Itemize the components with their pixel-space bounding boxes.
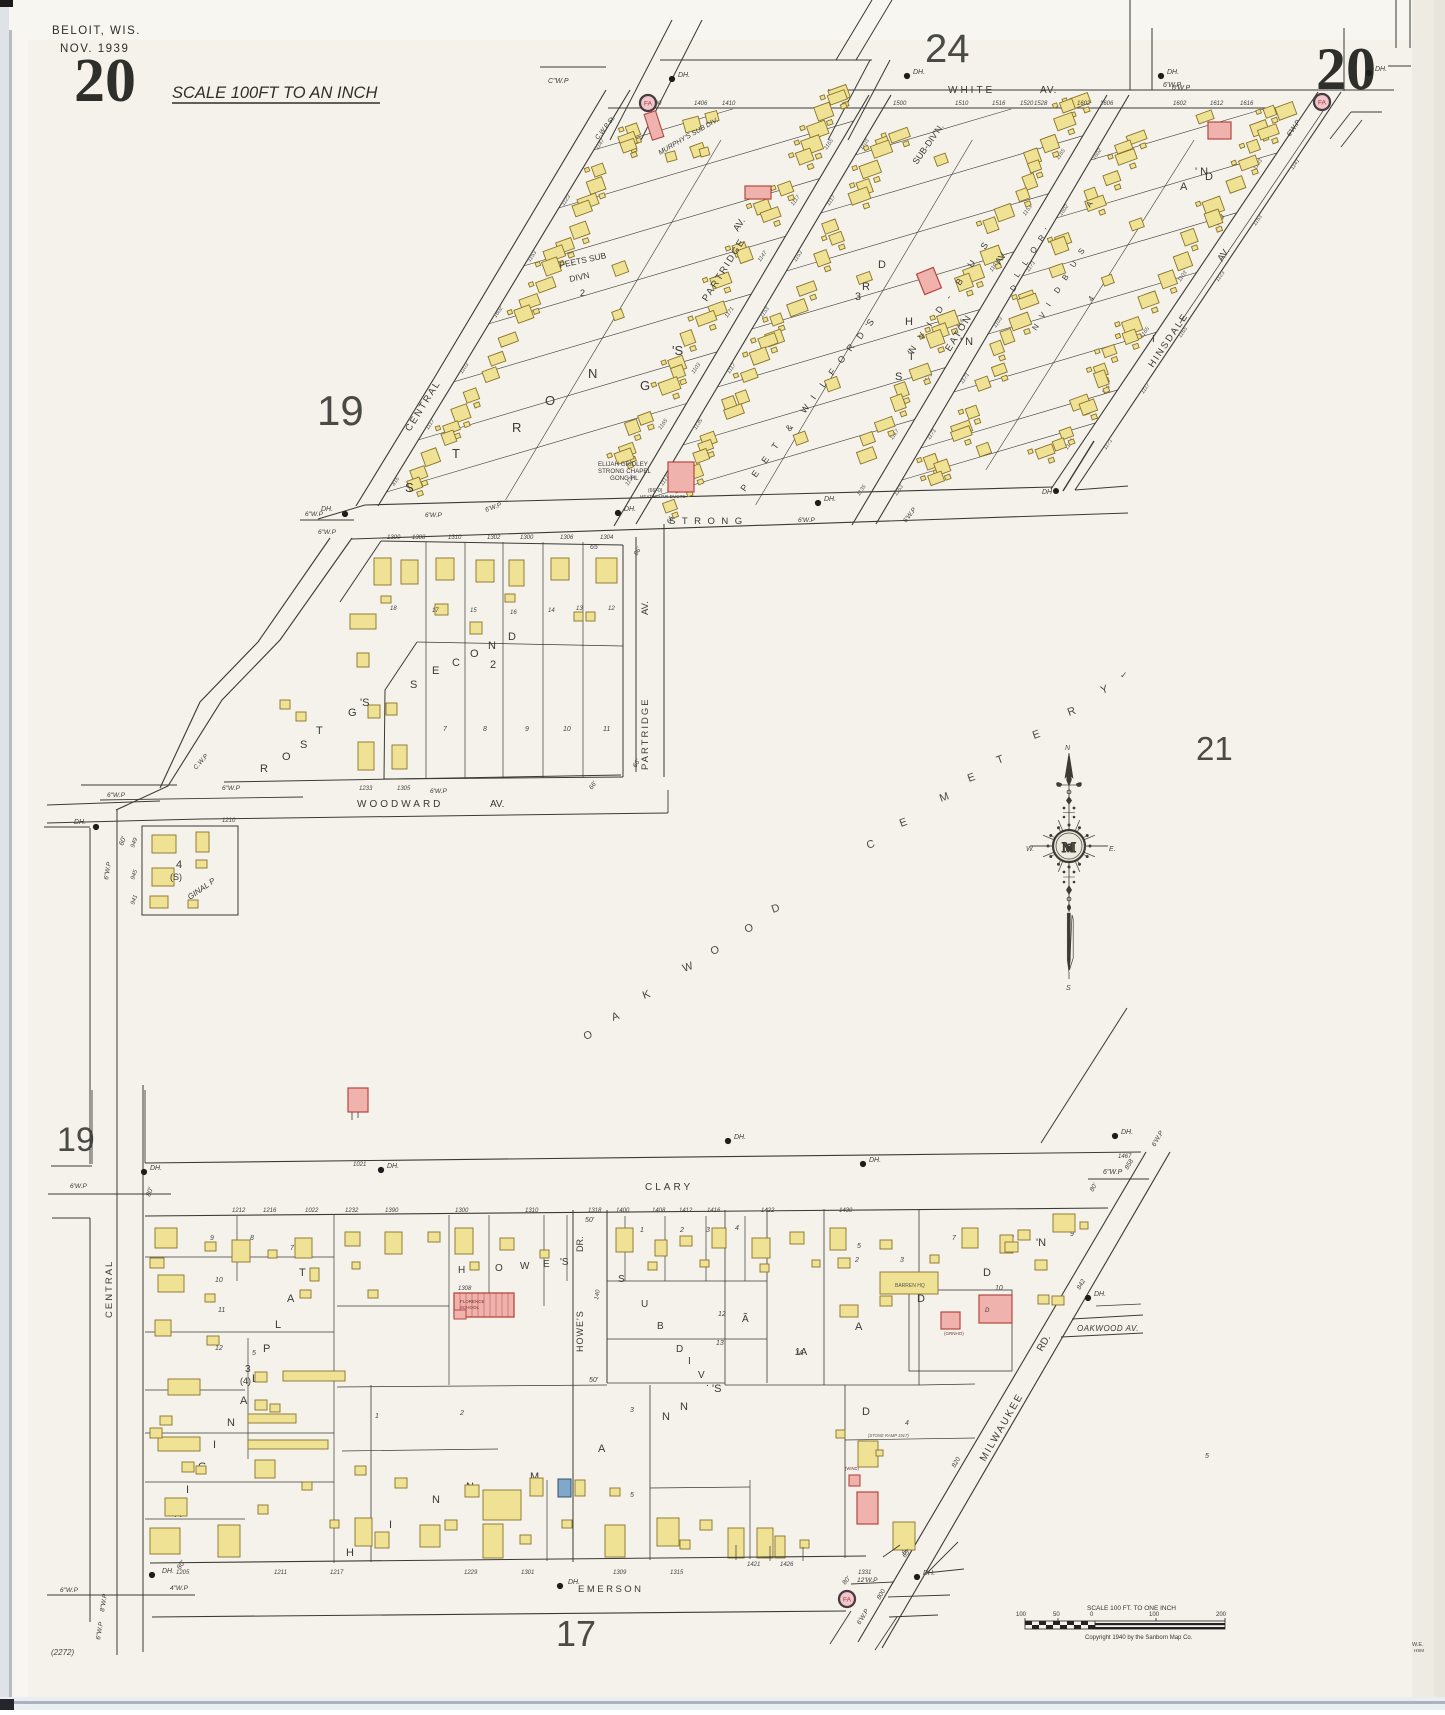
svg-text:1520: 1520 — [1020, 101, 1034, 107]
svg-text:5: 5 — [630, 1492, 634, 1499]
svg-text:24: 24 — [925, 27, 970, 71]
svg-text:'S: 'S — [560, 1257, 569, 1268]
svg-text:D: D — [508, 631, 516, 643]
svg-text:(4): (4) — [240, 1376, 251, 1386]
svg-text:1331: 1331 — [858, 1570, 871, 1576]
svg-text:(STONE RAMP 1917): (STONE RAMP 1917) — [868, 1433, 909, 1438]
svg-text:FLORENCE: FLORENCE — [460, 1299, 485, 1304]
svg-text:13: 13 — [576, 606, 583, 612]
svg-text:1400: 1400 — [616, 1208, 630, 1214]
svg-text:14: 14 — [548, 608, 555, 614]
svg-text:FA: FA — [843, 1597, 852, 1604]
svg-text:C: C — [452, 657, 460, 669]
svg-text:(GRNHO): (GRNHO) — [944, 1331, 964, 1336]
svg-text:GONG HL: GONG HL — [610, 475, 639, 482]
svg-text:S: S — [618, 1274, 625, 1285]
svg-text:50: 50 — [1053, 1612, 1060, 1618]
svg-text:1426: 1426 — [780, 1562, 794, 1568]
svg-text:DH.: DH. — [824, 496, 836, 503]
svg-text:20: 20 — [74, 47, 136, 115]
svg-text:D: D — [862, 1406, 870, 1418]
svg-text:E: E — [543, 1259, 550, 1270]
svg-text:3: 3 — [245, 1364, 251, 1375]
svg-text:3: 3 — [855, 291, 861, 303]
svg-text:HEAT HO P.R DUCTS: HEAT HO P.R DUCTS — [640, 494, 685, 499]
svg-text:H: H — [346, 1547, 354, 1559]
svg-text:1210: 1210 — [222, 818, 236, 824]
svg-text:1308: 1308 — [412, 535, 426, 541]
svg-text:D: D — [878, 259, 886, 271]
svg-text:S: S — [410, 679, 417, 691]
svg-text:4: 4 — [176, 859, 182, 871]
svg-text:1315: 1315 — [670, 1570, 684, 1576]
svg-text:D: D — [676, 1344, 683, 1355]
svg-text:N: N — [662, 1411, 670, 1423]
svg-text:1528: 1528 — [1034, 101, 1048, 107]
svg-text:G: G — [640, 378, 650, 393]
svg-text:SCALE 100 FT. TO ONE INCH: SCALE 100 FT. TO ONE INCH — [1087, 1605, 1176, 1612]
svg-text:DH: DH — [1042, 489, 1053, 496]
svg-text:12: 12 — [718, 1311, 726, 1318]
svg-text:5: 5 — [1205, 1453, 1209, 1460]
svg-text:1318: 1318 — [588, 1208, 602, 1214]
svg-text:8: 8 — [483, 726, 487, 733]
svg-text:1301: 1301 — [521, 1570, 534, 1576]
svg-text:S: S — [1066, 985, 1071, 992]
svg-text:N: N — [488, 640, 496, 652]
svg-text:✓: ✓ — [1120, 670, 1128, 680]
svg-text:DH.: DH. — [923, 1570, 935, 1577]
svg-text:6"W.P: 6"W.P — [318, 529, 337, 536]
svg-text:1412: 1412 — [679, 1208, 693, 1214]
svg-text:16: 16 — [510, 610, 517, 616]
svg-text:1516: 1516 — [992, 101, 1006, 107]
svg-text:'N: 'N — [1036, 1237, 1046, 1249]
svg-text:AV.: AV. — [1040, 85, 1057, 96]
svg-text:DH.: DH. — [678, 72, 690, 79]
svg-text:I: I — [213, 1439, 216, 1451]
svg-text:5: 5 — [857, 1243, 861, 1250]
svg-text:H: H — [458, 1265, 465, 1276]
svg-text:1309: 1309 — [613, 1570, 627, 1576]
svg-text:10: 10 — [215, 1277, 223, 1284]
svg-text:1305: 1305 — [397, 786, 411, 792]
svg-text:R: R — [512, 420, 521, 435]
svg-text:100: 100 — [1016, 1612, 1027, 1618]
svg-text:12: 12 — [608, 606, 615, 612]
svg-text:6'W.P: 6'W.P — [798, 517, 816, 524]
svg-text:4: 4 — [735, 1225, 739, 1232]
svg-text:S: S — [300, 739, 307, 751]
svg-text:4"W.P: 4"W.P — [170, 1585, 189, 1592]
svg-text:18: 18 — [390, 606, 397, 612]
svg-text:E: E — [432, 665, 439, 677]
svg-text:DH.: DH. — [1094, 1291, 1106, 1298]
svg-text:1430: 1430 — [839, 1208, 853, 1214]
svg-text:W: W — [520, 1261, 530, 1272]
svg-text:'S: 'S — [360, 697, 369, 709]
svg-text:1217: 1217 — [330, 1570, 344, 1576]
svg-text:6"W.P: 6"W.P — [1103, 1169, 1123, 1176]
svg-text:E.: E. — [1109, 846, 1116, 853]
svg-text:1022: 1022 — [305, 1208, 319, 1214]
svg-text:DH.: DH. — [321, 506, 333, 513]
svg-text:1229: 1229 — [464, 1570, 478, 1576]
svg-text:FA: FA — [1318, 100, 1327, 107]
svg-text:DH.: DH. — [387, 1163, 399, 1170]
svg-text:10: 10 — [995, 1285, 1003, 1292]
svg-text:1232: 1232 — [345, 1208, 359, 1214]
svg-text:21: 21 — [1196, 730, 1233, 767]
svg-text:200: 200 — [1216, 1612, 1227, 1618]
svg-text:AV.: AV. — [490, 799, 504, 810]
svg-text:17: 17 — [432, 608, 439, 614]
svg-text:2: 2 — [854, 1257, 859, 1264]
svg-text:1422: 1422 — [761, 1208, 775, 1214]
svg-text:Ã: Ã — [742, 1312, 749, 1325]
svg-text:'S: 'S — [712, 1383, 721, 1395]
svg-text:N: N — [588, 366, 597, 381]
svg-text:.: . — [706, 1378, 709, 1389]
svg-text:1021: 1021 — [353, 1162, 366, 1168]
svg-text:1616: 1616 — [1240, 101, 1254, 107]
svg-text:1602: 1602 — [1173, 101, 1187, 107]
svg-text:T: T — [316, 725, 323, 737]
svg-text:1310: 1310 — [525, 1208, 539, 1214]
svg-text:65': 65' — [590, 544, 600, 551]
svg-text:1606: 1606 — [1100, 101, 1114, 107]
svg-text:2: 2 — [490, 659, 496, 671]
svg-text:DR.: DR. — [575, 1237, 585, 1253]
svg-text:A: A — [1180, 181, 1188, 193]
svg-text:1410: 1410 — [722, 101, 736, 107]
svg-text:O: O — [470, 648, 479, 660]
svg-text:OAKWOOD AV.: OAKWOOD AV. — [1077, 1324, 1139, 1333]
svg-text:1212: 1212 — [232, 1208, 246, 1214]
svg-text:DH.: DH. — [1121, 1129, 1133, 1136]
svg-text:U: U — [641, 1299, 648, 1310]
svg-text:FA: FA — [644, 101, 653, 108]
svg-text:8: 8 — [250, 1235, 254, 1242]
svg-text:1308: 1308 — [458, 1286, 472, 1292]
svg-text:AV.: AV. — [640, 601, 651, 615]
svg-text:17: 17 — [556, 1613, 596, 1654]
svg-text:2: 2 — [679, 1227, 684, 1234]
svg-text:O: O — [545, 393, 555, 408]
svg-text:3: 3 — [706, 1227, 710, 1234]
svg-text:BELOIT, WIS.: BELOIT, WIS. — [52, 25, 141, 37]
svg-text:19: 19 — [57, 1121, 95, 1159]
svg-text:Copyright 1940 by the Sanborn: Copyright 1940 by the Sanborn Map Co. — [1085, 1635, 1193, 1641]
svg-text:3: 3 — [630, 1407, 634, 1414]
svg-text:1406: 1406 — [694, 101, 708, 107]
svg-text:DH.: DH. — [162, 1568, 174, 1575]
svg-text:9: 9 — [210, 1235, 214, 1242]
svg-text:11: 11 — [603, 726, 610, 733]
svg-text:CLARY: CLARY — [645, 1182, 693, 1193]
svg-text:N: N — [432, 1494, 440, 1506]
svg-text:P: P — [263, 1343, 270, 1355]
svg-text:1205: 1205 — [176, 1570, 190, 1576]
svg-text:G: G — [348, 707, 357, 719]
svg-text:D: D — [985, 1308, 990, 1314]
svg-text:(2272): (2272) — [51, 1648, 74, 1657]
svg-text:WOODWARD: WOODWARD — [357, 799, 443, 810]
svg-text:50': 50' — [585, 1217, 595, 1224]
svg-text:3: 3 — [900, 1257, 904, 1264]
svg-text:DH.: DH. — [568, 1579, 580, 1586]
svg-text:15: 15 — [470, 608, 477, 614]
svg-text:1390: 1390 — [385, 1208, 399, 1214]
svg-text:6'W.P: 6'W.P — [425, 512, 443, 519]
svg-text:BARREN HQ: BARREN HQ — [895, 1283, 925, 1289]
svg-text:N: N — [227, 1417, 235, 1429]
svg-text:9: 9 — [525, 726, 529, 733]
svg-text:1602: 1602 — [1077, 101, 1091, 107]
svg-text:2: 2 — [459, 1410, 464, 1417]
svg-text:1500: 1500 — [893, 101, 907, 107]
svg-text:S: S — [895, 371, 902, 383]
svg-text:100: 100 — [1149, 1612, 1160, 1618]
svg-text:A: A — [240, 1395, 248, 1407]
svg-text:6"W.P: 6"W.P — [60, 1587, 79, 1594]
svg-text:6'W.P: 6'W.P — [70, 1183, 88, 1190]
svg-text:A: A — [287, 1293, 295, 1305]
svg-text:1300: 1300 — [520, 535, 534, 541]
svg-text:DH.: DH. — [1375, 66, 1387, 73]
svg-text:1: 1 — [640, 1227, 644, 1234]
svg-text:ELIJAH GRIDLEY: ELIJAH GRIDLEY — [598, 461, 648, 468]
svg-text:A: A — [598, 1443, 606, 1455]
svg-text:20: 20 — [1316, 36, 1376, 102]
svg-text:1302: 1302 — [487, 535, 501, 541]
svg-text:1300: 1300 — [455, 1208, 469, 1214]
svg-text:W.: W. — [1026, 846, 1034, 853]
svg-text:DH.: DH. — [150, 1165, 162, 1172]
svg-text:R: R — [260, 763, 268, 775]
svg-text:SCHOOL: SCHOOL — [460, 1305, 480, 1310]
svg-text:DH.: DH. — [734, 1134, 746, 1141]
svg-text:1510: 1510 — [955, 101, 969, 107]
svg-text:6"W.P: 6"W.P — [222, 785, 241, 792]
svg-text:V: V — [698, 1370, 705, 1381]
svg-text:' N: ' N — [1195, 166, 1208, 178]
svg-text:L: L — [275, 1319, 281, 1331]
svg-text:1310: 1310 — [448, 535, 462, 541]
svg-text:19: 19 — [317, 387, 364, 434]
svg-text:SCALE 100FT TO AN INCH: SCALE 100FT TO AN INCH — [172, 84, 377, 102]
svg-text:6'W.P: 6'W.P — [1172, 85, 1191, 92]
svg-text:1421: 1421 — [747, 1562, 760, 1568]
svg-text:13: 13 — [716, 1340, 724, 1347]
svg-text:1211: 1211 — [274, 1570, 287, 1576]
svg-text:S: S — [405, 480, 414, 495]
svg-text:I: I — [186, 1484, 189, 1496]
svg-text:D: D — [917, 1293, 925, 1305]
svg-text:N: N — [680, 1401, 688, 1413]
svg-text:DH.: DH. — [1167, 69, 1179, 76]
svg-text:O: O — [495, 1263, 503, 1274]
svg-text:DH.: DH. — [74, 819, 86, 826]
svg-text:12: 12 — [215, 1345, 223, 1352]
svg-text:EMERSON: EMERSON — [578, 1584, 644, 1595]
svg-text:(S): (S) — [170, 872, 182, 882]
svg-text:H: H — [905, 316, 913, 328]
svg-text:T: T — [299, 1267, 306, 1279]
svg-text:A: A — [855, 1321, 863, 1333]
svg-text:4: 4 — [905, 1420, 909, 1427]
svg-text:HOWE'S: HOWE'S — [575, 1310, 585, 1352]
svg-text:STRONG: STRONG — [669, 516, 749, 527]
svg-text:B: B — [657, 1321, 664, 1332]
svg-text:I: I — [389, 1519, 392, 1531]
svg-text:2: 2 — [580, 288, 585, 298]
svg-text:DH.: DH. — [869, 1157, 881, 1164]
svg-text:1300: 1300 — [387, 535, 401, 541]
svg-text:WHITE: WHITE — [948, 85, 995, 96]
svg-text:1408: 1408 — [652, 1208, 666, 1214]
svg-text:11: 11 — [218, 1307, 225, 1314]
svg-text:R: R — [862, 281, 870, 293]
svg-text:6"W.P: 6"W.P — [107, 792, 126, 799]
svg-text:1416: 1416 — [707, 1208, 721, 1214]
svg-text:(WIND): (WIND) — [845, 1466, 860, 1471]
svg-text:HSM: HSM — [1414, 1648, 1424, 1653]
svg-text:1612: 1612 — [1210, 101, 1224, 107]
svg-text:10: 10 — [563, 726, 571, 733]
svg-text:PARTRIDGE: PARTRIDGE — [640, 697, 651, 770]
svg-text:1306: 1306 — [560, 535, 574, 541]
svg-text:1304: 1304 — [600, 535, 614, 541]
svg-text:DH.: DH. — [624, 506, 636, 513]
svg-text:I: I — [1152, 334, 1155, 345]
svg-text:5: 5 — [252, 1350, 256, 1357]
svg-text:6'W.P: 6'W.P — [430, 788, 448, 795]
svg-text:T: T — [452, 446, 460, 461]
svg-text:STRONG CHAPEL: STRONG CHAPEL — [598, 468, 652, 475]
svg-text:I: I — [688, 1356, 691, 1367]
svg-text:'S: 'S — [672, 343, 683, 358]
svg-text:1216: 1216 — [263, 1208, 277, 1214]
svg-text:1233: 1233 — [359, 786, 373, 792]
svg-text:S: S — [1066, 842, 1072, 854]
svg-text:1A: 1A — [795, 1350, 804, 1357]
svg-text:1: 1 — [375, 1413, 379, 1420]
svg-text:12'W.P: 12'W.P — [857, 1577, 878, 1584]
svg-text:DH.: DH. — [913, 69, 925, 76]
svg-text:C"W.P: C"W.P — [548, 78, 569, 85]
svg-text:O: O — [282, 751, 291, 763]
svg-text:CENTRAL: CENTRAL — [104, 1260, 115, 1318]
svg-text:50': 50' — [589, 1377, 599, 1384]
svg-text:D: D — [983, 1267, 991, 1279]
